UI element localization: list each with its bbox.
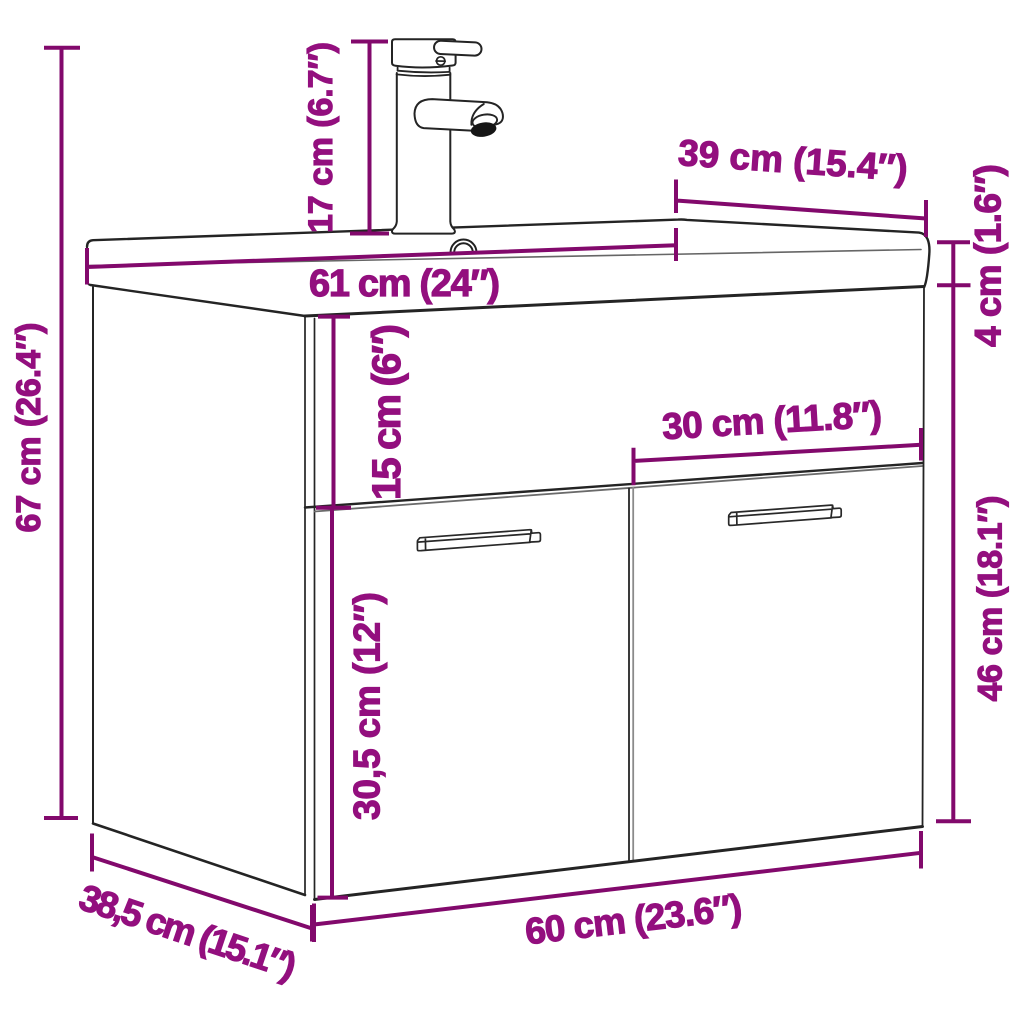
svg-text:67 cm (26.4″): 67 cm (26.4″) bbox=[10, 323, 48, 533]
svg-text:61 cm (24″): 61 cm (24″) bbox=[309, 263, 500, 305]
svg-text:17 cm (6.7″): 17 cm (6.7″) bbox=[302, 42, 340, 233]
svg-text:30,5 cm (12″): 30,5 cm (12″) bbox=[346, 592, 387, 820]
svg-text:46 cm (18.1″): 46 cm (18.1″) bbox=[971, 496, 1009, 702]
svg-text:4 cm (1.6″): 4 cm (1.6″) bbox=[967, 164, 1008, 347]
svg-text:15 cm (6″): 15 cm (6″) bbox=[365, 324, 409, 500]
